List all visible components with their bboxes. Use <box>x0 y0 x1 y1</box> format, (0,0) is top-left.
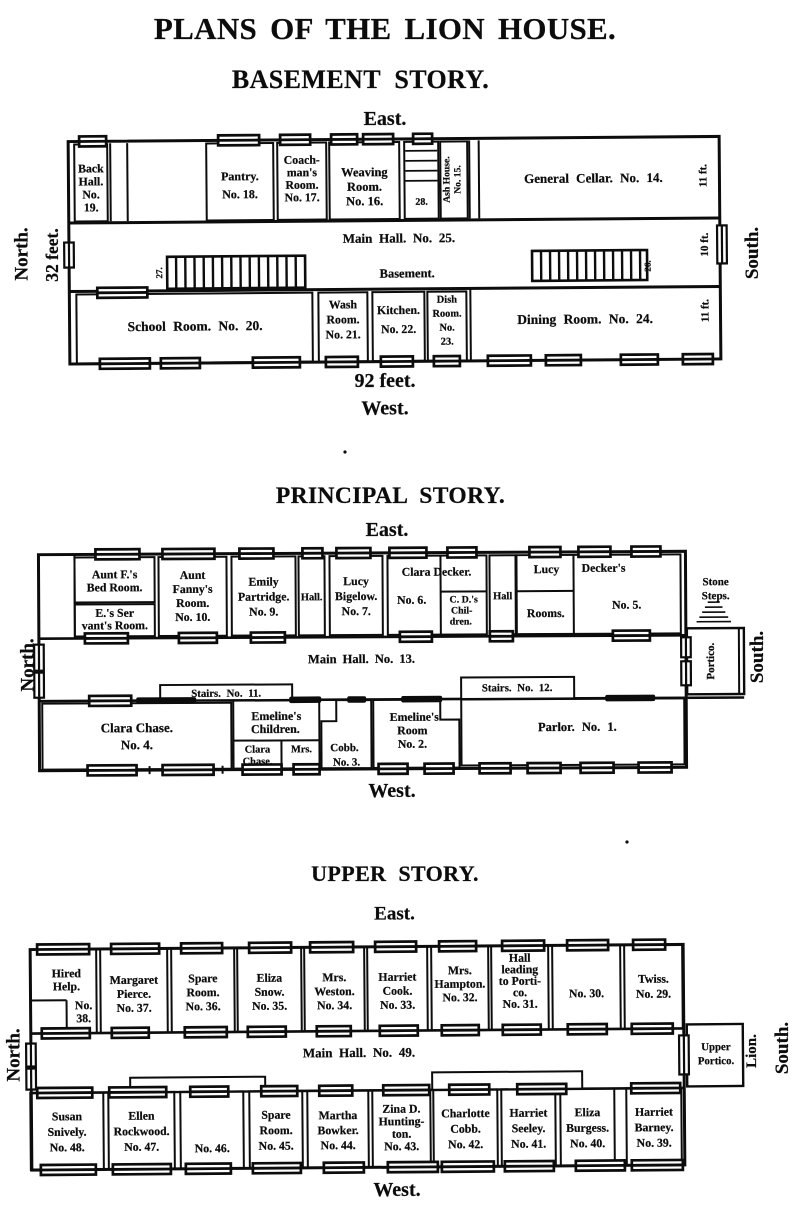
svg-text:No. 34.: No. 34. <box>317 998 352 1012</box>
svg-text:26.: 26. <box>643 260 653 271</box>
svg-text:Kitchen.: Kitchen. <box>377 303 420 317</box>
svg-text:No.: No. <box>75 998 93 1012</box>
svg-text:11 ft.: 11 ft. <box>697 164 709 188</box>
svg-text:Clara Chase.: Clara Chase. <box>101 720 173 735</box>
svg-text:No. 39.: No. 39. <box>637 1136 672 1150</box>
svg-text:Dining Room. No. 24.: Dining Room. No. 24. <box>517 311 653 327</box>
svg-text:28.: 28. <box>415 197 428 208</box>
svg-text:11 ft.: 11 ft. <box>699 299 711 323</box>
svg-text:No. 43.: No. 43. <box>384 1139 419 1153</box>
svg-text:Cook.: Cook. <box>383 984 413 998</box>
svg-text:West.: West. <box>368 780 415 802</box>
svg-text:East.: East. <box>366 519 409 541</box>
svg-text:Mrs.: Mrs. <box>291 744 313 755</box>
svg-text:Burgess.: Burgess. <box>566 1121 609 1135</box>
svg-text:19.: 19. <box>84 200 99 214</box>
svg-text:UPPER STORY.: UPPER STORY. <box>311 861 479 886</box>
svg-text:No. 16.: No. 16. <box>346 194 383 208</box>
svg-text:No. 9.: No. 9. <box>249 604 278 618</box>
svg-text:Help.: Help. <box>53 979 80 993</box>
svg-text:No. 45.: No. 45. <box>259 1138 294 1152</box>
svg-text:Twiss.: Twiss. <box>638 972 669 986</box>
svg-text:Hampton.: Hampton. <box>434 976 485 990</box>
svg-text:23.: 23. <box>441 337 454 348</box>
svg-text:Room.: Room. <box>176 596 209 610</box>
svg-text:Aunt: Aunt <box>180 568 206 582</box>
svg-text:Dish: Dish <box>437 295 458 306</box>
svg-text:Clara: Clara <box>245 744 271 755</box>
svg-text:Chil-: Chil- <box>451 605 472 616</box>
svg-text:Lucy: Lucy <box>534 562 560 576</box>
svg-text:No. 36.: No. 36. <box>186 999 221 1013</box>
svg-text:Wash: Wash <box>329 297 358 311</box>
svg-text:No. 7.: No. 7. <box>342 604 371 618</box>
svg-text:Lucy: Lucy <box>343 574 369 588</box>
svg-text:South.: South. <box>742 227 763 279</box>
svg-text:East.: East. <box>374 904 415 925</box>
svg-text:dren.: dren. <box>450 616 473 627</box>
svg-text:Eliza: Eliza <box>257 971 283 985</box>
svg-text:No. 5.: No. 5. <box>612 598 641 612</box>
svg-text:No. 30.: No. 30. <box>569 986 604 1000</box>
svg-text:PRINCIPAL STORY.: PRINCIPAL STORY. <box>276 483 505 509</box>
svg-text:Mrs.: Mrs. <box>322 970 346 984</box>
svg-text:No. 10.: No. 10. <box>175 610 210 624</box>
svg-text:Lion.: Lion. <box>744 1034 760 1068</box>
svg-text:Room.: Room. <box>186 985 219 999</box>
svg-text:No. 22.: No. 22. <box>381 322 416 336</box>
svg-text:No. 18.: No. 18. <box>222 187 258 201</box>
svg-text:Hall.: Hall. <box>301 592 323 603</box>
svg-text:Margaret: Margaret <box>110 973 158 987</box>
svg-text:Room.: Room. <box>259 1123 292 1137</box>
svg-text:Stairs. No. 12.: Stairs. No. 12. <box>482 682 553 694</box>
svg-text:Main Hall. No. 25.: Main Hall. No. 25. <box>343 230 455 246</box>
svg-text:No. 3.: No. 3. <box>333 757 361 769</box>
svg-text:South.: South. <box>772 1022 793 1074</box>
svg-text:Clara Decker.: Clara Decker. <box>402 564 472 578</box>
svg-text:vant's Room.: vant's Room. <box>82 618 148 632</box>
svg-text:No.: No. <box>82 187 100 201</box>
svg-text:North.: North. <box>18 638 39 691</box>
svg-text:Eliza: Eliza <box>575 1105 601 1119</box>
svg-text:Bed Room.: Bed Room. <box>87 580 143 594</box>
svg-text:Portico.: Portico. <box>705 642 717 679</box>
svg-text:Pierce.: Pierce. <box>117 987 151 1001</box>
svg-text:Harriet: Harriet <box>509 1106 547 1120</box>
svg-text:No. 46.: No. 46. <box>195 1141 230 1155</box>
svg-text:No. 48.: No. 48. <box>50 1140 85 1154</box>
svg-text:Main Hall. No. 49.: Main Hall. No. 49. <box>303 1045 415 1061</box>
svg-text:No. 2.: No. 2. <box>398 737 427 751</box>
svg-text:32 feet.: 32 feet. <box>42 228 62 281</box>
svg-text:Portico.: Portico. <box>698 1055 735 1067</box>
svg-text:Weaving: Weaving <box>341 165 388 179</box>
svg-text:No. 35.: No. 35. <box>252 999 287 1013</box>
svg-text:No. 17.: No. 17. <box>284 190 319 204</box>
svg-text:10 ft.: 10 ft. <box>699 232 711 256</box>
svg-text:Weston.: Weston. <box>314 984 354 998</box>
svg-text:No. 44.: No. 44. <box>321 1138 356 1152</box>
svg-text:No. 33.: No. 33. <box>380 998 415 1012</box>
svg-text:92 feet.: 92 feet. <box>354 370 415 392</box>
svg-text:Ellen: Ellen <box>128 1109 155 1123</box>
svg-text:No. 4.: No. 4. <box>121 737 153 752</box>
svg-text:Room.: Room. <box>326 312 359 326</box>
svg-text:No. 47.: No. 47. <box>124 1140 159 1154</box>
svg-text:School Room. No. 20.: School Room. No. 20. <box>128 318 263 334</box>
svg-text:Barney.: Barney. <box>634 1120 673 1134</box>
svg-text:BASEMENT STORY.: BASEMENT STORY. <box>232 65 489 94</box>
svg-text:No. 40.: No. 40. <box>570 1136 605 1150</box>
svg-text:Emily: Emily <box>248 574 278 588</box>
svg-text:Martha: Martha <box>319 1108 358 1122</box>
svg-text:Bigelow.: Bigelow. <box>335 589 377 603</box>
svg-text:Decker's: Decker's <box>582 561 626 575</box>
svg-text:Fanny's: Fanny's <box>173 582 213 596</box>
svg-text:Steps.: Steps. <box>702 590 730 602</box>
svg-text:Upper: Upper <box>701 1041 731 1053</box>
svg-text:Children.: Children. <box>251 722 300 736</box>
svg-text:West.: West. <box>373 1179 420 1201</box>
svg-text:Charlotte: Charlotte <box>441 1106 490 1120</box>
svg-text:Emeline's: Emeline's <box>390 710 440 724</box>
svg-text:Rooms.: Rooms. <box>527 606 565 620</box>
svg-text:Harriet: Harriet <box>635 1105 673 1119</box>
svg-text:Rockwood.: Rockwood. <box>113 1124 169 1138</box>
svg-text:Mrs.: Mrs. <box>448 963 472 977</box>
svg-text:Bowker.: Bowker. <box>317 1123 358 1137</box>
svg-text:No. 21.: No. 21. <box>326 327 361 341</box>
svg-text:Stone: Stone <box>702 576 728 588</box>
svg-text:PLANS OF THE LION HOUSE.: PLANS OF THE LION HOUSE. <box>154 11 616 46</box>
svg-text:Room: Room <box>397 723 427 737</box>
svg-text:Cobb.: Cobb. <box>330 742 359 754</box>
svg-text:West.: West. <box>361 398 408 420</box>
svg-text:North.: North. <box>12 227 33 280</box>
svg-text:Susan: Susan <box>52 1109 83 1123</box>
svg-text:27.: 27. <box>154 267 164 278</box>
svg-text:No. 29.: No. 29. <box>636 987 671 1001</box>
svg-text:No. 32.: No. 32. <box>442 990 477 1004</box>
svg-text:C. D.'s: C. D.'s <box>450 594 478 605</box>
svg-text:Spare: Spare <box>261 1108 290 1122</box>
svg-text:South.: South. <box>747 631 768 683</box>
svg-text:Ash House.: Ash House. <box>441 156 452 202</box>
svg-text:Harriet: Harriet <box>378 970 416 984</box>
svg-text:No.: No. <box>439 323 455 334</box>
svg-text:No. 15.: No. 15. <box>452 165 463 194</box>
svg-text:Main Hall. No. 13.: Main Hall. No. 13. <box>308 652 415 667</box>
svg-text:38.: 38. <box>76 1011 91 1025</box>
svg-text:Partridge.: Partridge. <box>238 589 290 603</box>
svg-text:General Cellar. No. 14.: General Cellar. No. 14. <box>524 170 663 186</box>
svg-text:No. 6.: No. 6. <box>397 593 426 607</box>
svg-text:Cobb.: Cobb. <box>450 1122 481 1136</box>
svg-text:Basement.: Basement. <box>380 266 435 280</box>
svg-text:Snow.: Snow. <box>255 985 285 999</box>
svg-text:Room.: Room. <box>432 308 462 319</box>
svg-text:No. 37.: No. 37. <box>117 1001 152 1015</box>
svg-text:Spare: Spare <box>188 971 217 985</box>
svg-text:No. 41.: No. 41. <box>511 1137 546 1151</box>
svg-text:Parlor. No. 1.: Parlor. No. 1. <box>538 720 617 734</box>
svg-text:Stairs. No. 11.: Stairs. No. 11. <box>191 688 261 700</box>
svg-text:East.: East. <box>364 108 407 130</box>
svg-text:Pantry.: Pantry. <box>221 169 259 183</box>
svg-text:Room.: Room. <box>347 180 382 194</box>
svg-text:Seeley.: Seeley. <box>512 1121 546 1135</box>
svg-text:No. 42.: No. 42. <box>448 1137 483 1151</box>
svg-text:Snively.: Snively. <box>48 1125 87 1139</box>
svg-text:No. 31.: No. 31. <box>502 997 537 1011</box>
svg-text:North.: North. <box>4 1028 25 1081</box>
svg-text:Hall: Hall <box>493 591 512 602</box>
